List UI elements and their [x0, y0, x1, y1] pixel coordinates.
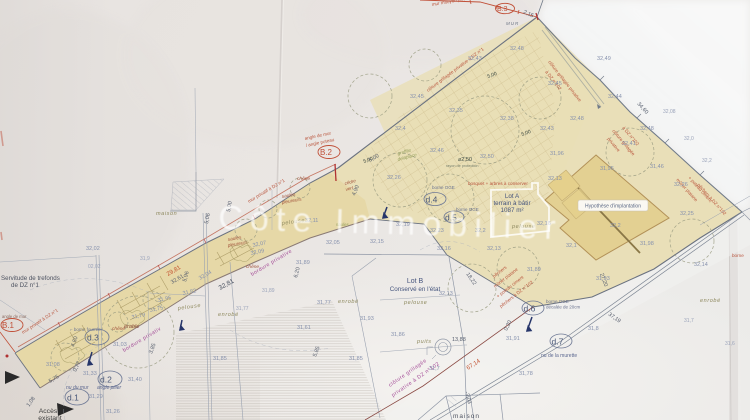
svg-text:32,13: 32,13 [548, 176, 562, 182]
svg-text:31,46: 31,46 [650, 164, 664, 170]
svg-text:maison: maison [156, 211, 177, 217]
svg-text:terrain à bâtir: terrain à bâtir [493, 200, 530, 207]
svg-text:31,98: 31,98 [640, 241, 654, 247]
svg-text:31,89: 31,89 [262, 288, 275, 294]
svg-text:31,26: 31,26 [106, 409, 120, 415]
svg-text:nu du mur: nu du mur [66, 385, 89, 391]
svg-text:32,05: 32,05 [326, 240, 340, 246]
svg-text:bosquet + arbres à conserver: bosquet + arbres à conserver [468, 181, 528, 186]
svg-text:31,61: 31,61 [297, 325, 311, 331]
svg-text:32,45: 32,45 [410, 94, 424, 100]
svg-text:d.7: d.7 [552, 337, 564, 347]
svg-text:31,93: 31,93 [596, 276, 610, 282]
svg-text:d.2: d.2 [100, 375, 112, 385]
svg-text:B.2: B.2 [320, 148, 333, 157]
svg-text:31,8: 31,8 [588, 326, 599, 332]
svg-text:31,33: 31,33 [83, 371, 97, 377]
svg-text:d.6: d.6 [524, 304, 536, 314]
svg-text:32,02: 32,02 [86, 246, 100, 252]
svg-text:Accès: Accès [39, 408, 58, 415]
svg-text:borne: borne [732, 253, 744, 258]
svg-text:angle de mur: angle de mur [2, 314, 27, 319]
svg-text:31,9: 31,9 [140, 256, 150, 262]
svg-text:32,16: 32,16 [437, 246, 451, 252]
svg-text:32,26: 32,26 [674, 182, 688, 188]
svg-text:31,7: 31,7 [684, 318, 694, 324]
svg-text:chêne: chêne [246, 264, 259, 270]
svg-text:32,4: 32,4 [395, 126, 406, 132]
svg-text:enrobé: enrobé [700, 298, 721, 304]
svg-text:angle pilier: angle pilier [97, 385, 122, 391]
svg-text:31,40: 31,40 [128, 377, 142, 383]
svg-text:d.1: d.1 [67, 393, 79, 403]
svg-text:32,26: 32,26 [387, 175, 401, 181]
svg-text:borne OGE: borne OGE [432, 185, 455, 190]
svg-text:Conservé en l'état: Conservé en l'état [390, 286, 441, 293]
svg-text:Lot B: Lot B [407, 278, 424, 285]
svg-text:32,46: 32,46 [430, 148, 444, 154]
svg-text:32,14: 32,14 [694, 262, 708, 268]
svg-text:32,50: 32,50 [480, 154, 494, 160]
svg-text:31,85: 31,85 [213, 356, 227, 362]
svg-text:32,43: 32,43 [468, 56, 482, 62]
svg-text:31,91: 31,91 [506, 336, 520, 342]
svg-text:32,48: 32,48 [570, 116, 584, 122]
svg-text:borne OGE: borne OGE [546, 299, 569, 304]
svg-text:32,1: 32,1 [566, 243, 577, 249]
svg-text:32,35: 32,35 [449, 108, 463, 114]
svg-text:de DZ n°1: de DZ n°1 [11, 282, 39, 289]
svg-text:32,13: 32,13 [487, 246, 501, 252]
svg-text:chêne: chêne [297, 176, 310, 182]
svg-text:32,2: 32,2 [702, 158, 712, 164]
svg-text:décalée de 20cm: décalée de 20cm [546, 305, 581, 310]
svg-text:32,41: 32,41 [622, 141, 636, 147]
svg-text:31,78: 31,78 [519, 371, 533, 377]
svg-text:⌀2,50: ⌀2,50 [458, 157, 472, 163]
svg-text:31,85: 31,85 [349, 356, 363, 362]
svg-text:32,08: 32,08 [663, 109, 676, 115]
svg-text:d.4: d.4 [426, 195, 438, 205]
svg-text:31,29: 31,29 [89, 394, 103, 400]
svg-text:existant: existant [38, 415, 62, 420]
svg-text:31,96: 31,96 [600, 166, 614, 172]
svg-text:rayon de protection: rayon de protection [446, 164, 479, 168]
svg-text:pelouse: pelouse [403, 300, 427, 306]
svg-text:31,03: 31,03 [113, 342, 127, 348]
svg-text:31,77: 31,77 [317, 300, 331, 306]
svg-text:nu de la murette: nu de la murette [541, 353, 577, 359]
svg-text:érable: érable [124, 324, 139, 330]
svg-text:MUR: MUR [506, 21, 519, 26]
svg-text:32,2: 32,2 [610, 223, 621, 229]
svg-text:enrobé: enrobé [218, 312, 239, 318]
svg-text:32,48: 32,48 [510, 46, 524, 52]
svg-text:32,45: 32,45 [548, 81, 562, 87]
svg-text:maison: maison [453, 413, 480, 420]
svg-text:Servitude de trefonds: Servitude de trefonds [1, 275, 60, 282]
svg-text:31,96: 31,96 [550, 151, 564, 157]
svg-text:Hypothèse d'implantation: Hypothèse d'implantation [585, 204, 641, 210]
svg-text:32,49: 32,49 [597, 56, 611, 62]
svg-text:31,89: 31,89 [527, 267, 541, 273]
svg-text:B.1: B.1 [2, 321, 15, 330]
svg-text:32,44: 32,44 [608, 94, 622, 100]
svg-text:enrobé: enrobé [338, 299, 359, 305]
svg-text:31,93: 31,93 [360, 316, 374, 322]
svg-text:02,02: 02,02 [88, 264, 101, 270]
svg-text:31,77: 31,77 [236, 306, 249, 312]
svg-text:31,08: 31,08 [46, 362, 60, 368]
svg-text:Lot A: Lot A [505, 193, 520, 200]
svg-text:32,25: 32,25 [680, 211, 694, 217]
svg-text:31,89: 31,89 [296, 260, 310, 266]
svg-text:31,6: 31,6 [725, 341, 735, 347]
svg-text:32,48: 32,48 [640, 126, 654, 132]
svg-text:32,0: 32,0 [684, 136, 694, 142]
svg-text:32,38: 32,38 [500, 116, 514, 122]
svg-text:puits: puits [416, 339, 432, 345]
svg-text:31,7: 31,7 [429, 366, 440, 372]
svg-text:B.3: B.3 [497, 6, 508, 13]
svg-text:32,43: 32,43 [540, 126, 554, 132]
svg-text:32,13: 32,13 [439, 291, 453, 297]
svg-text:d.3: d.3 [87, 333, 99, 343]
svg-text:13,88: 13,88 [452, 337, 466, 343]
svg-text:31,86: 31,86 [391, 332, 405, 338]
